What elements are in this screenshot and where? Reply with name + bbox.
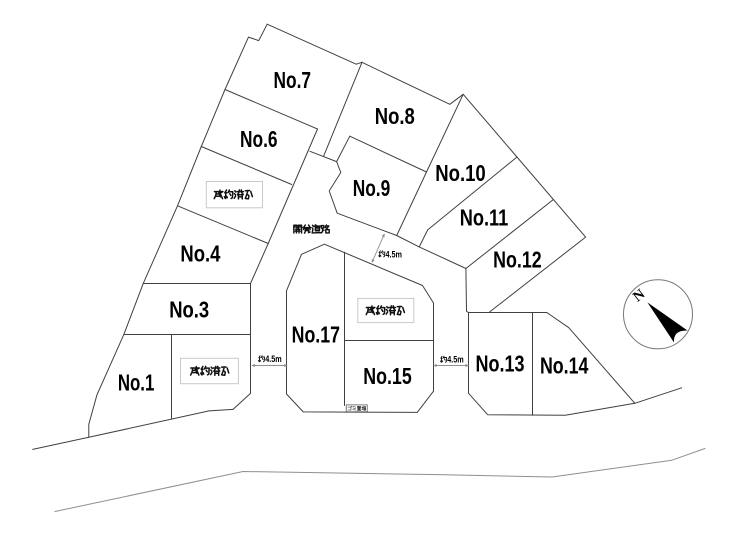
svg-text:4.5m: 4.5m (386, 249, 403, 259)
svg-text:No.15: No.15 (363, 363, 412, 389)
svg-text:No.7: No.7 (274, 67, 312, 93)
svg-text:No.8: No.8 (375, 103, 415, 129)
svg-text:No.4: No.4 (180, 240, 220, 266)
svg-text:No.17: No.17 (292, 322, 340, 348)
svg-text:4.5m: 4.5m (265, 354, 282, 364)
svg-text:4.5m: 4.5m (447, 355, 464, 365)
svg-text:No.14: No.14 (540, 353, 589, 379)
svg-text:No.13: No.13 (476, 350, 525, 376)
svg-text:No.12: No.12 (493, 247, 542, 273)
svg-text:No.1: No.1 (118, 369, 155, 395)
svg-text:No.10: No.10 (435, 160, 486, 186)
svg-text:No.3: No.3 (169, 297, 209, 323)
svg-text:No.9: No.9 (353, 175, 391, 201)
svg-text:No.11: No.11 (460, 205, 509, 231)
svg-text:No.6: No.6 (240, 126, 278, 152)
